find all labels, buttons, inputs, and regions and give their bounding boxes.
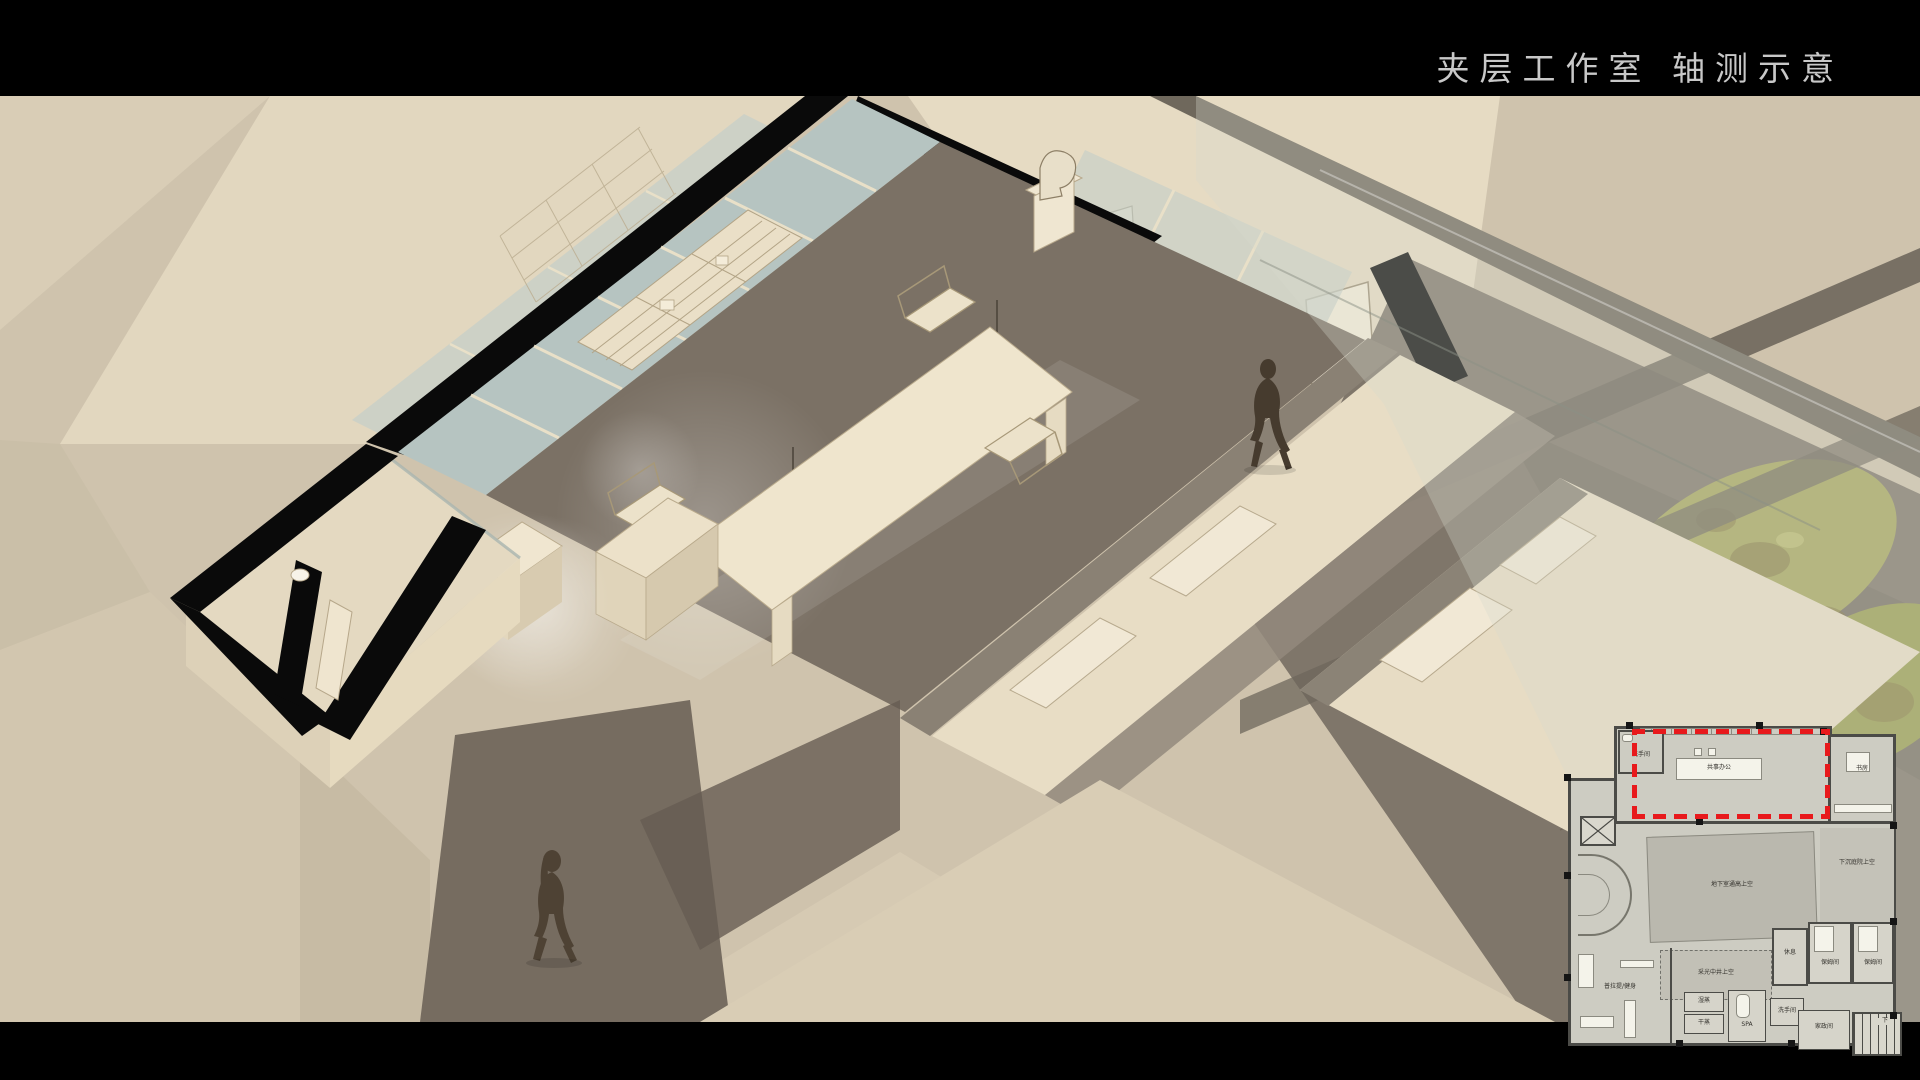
gym-bench (1620, 960, 1654, 968)
label-spa: SPA (1728, 1022, 1766, 1029)
gym-mat-1 (1580, 1016, 1614, 1028)
label-nanny-2: 保姆间 (1852, 960, 1894, 967)
nanny-bed-1 (1814, 926, 1834, 952)
plan-column (1890, 822, 1897, 829)
label-washroom-top: 洗手间 (1618, 752, 1664, 759)
plan-column (1564, 974, 1571, 981)
plan-column (1696, 818, 1703, 825)
washbasin (291, 569, 309, 581)
highlight-dash-top (1632, 729, 1830, 734)
page-title: 夹层工作室 轴测示意 (1437, 42, 1845, 90)
label-studio-office: 共事办公 (1676, 765, 1762, 772)
label-lightwell: 采光中井上空 (1660, 970, 1772, 977)
label-sunken-courtyard: 下沉庭院上空 (1818, 860, 1896, 867)
gym-mat-2 (1624, 1000, 1636, 1038)
nanny-bed-2 (1858, 926, 1878, 952)
plan-column (1564, 774, 1571, 781)
plan-column (1890, 918, 1897, 925)
label-dry-steam: 干蒸 (1684, 1020, 1724, 1027)
office-chair-1 (1694, 748, 1702, 756)
office-chair-2 (1708, 748, 1716, 756)
label-nanny-1: 保姆间 (1808, 960, 1852, 967)
label-pilates: 普拉提/健身 (1570, 984, 1670, 991)
spa-tub (1736, 994, 1750, 1018)
plan-column (1676, 1040, 1683, 1047)
plan-elevator (1580, 816, 1616, 846)
axonometric-presentation-board: 夹层工作室 轴测示意 洗手间 共事办公 书房 地下室通高上空 下沉庭院上空 采光… (0, 0, 1920, 1080)
floor-plan-inset: 洗手间 共事办公 书房 地下室通高上空 下沉庭院上空 采光中井上空 下 休息 保… (1556, 722, 1910, 1072)
label-basement-void: 地下室通高上空 (1648, 882, 1816, 889)
plan-column (1756, 722, 1763, 729)
label-study: 书房 (1828, 766, 1896, 773)
plan-column (1890, 1012, 1897, 1019)
label-rest: 休息 (1772, 950, 1808, 957)
label-housekeeping: 家政间 (1798, 1024, 1850, 1031)
plan-rest-room (1772, 928, 1808, 986)
study-bench (1834, 804, 1892, 813)
highlight-dash-left (1632, 729, 1637, 819)
plan-column (1788, 1040, 1795, 1047)
plan-column (1626, 722, 1633, 729)
highlight-dash-bottom (1632, 814, 1830, 819)
highlight-dash-right (1825, 729, 1830, 819)
plan-column (1564, 872, 1571, 879)
label-wet-steam: 湿蒸 (1684, 998, 1724, 1005)
treadmill (1578, 954, 1594, 988)
